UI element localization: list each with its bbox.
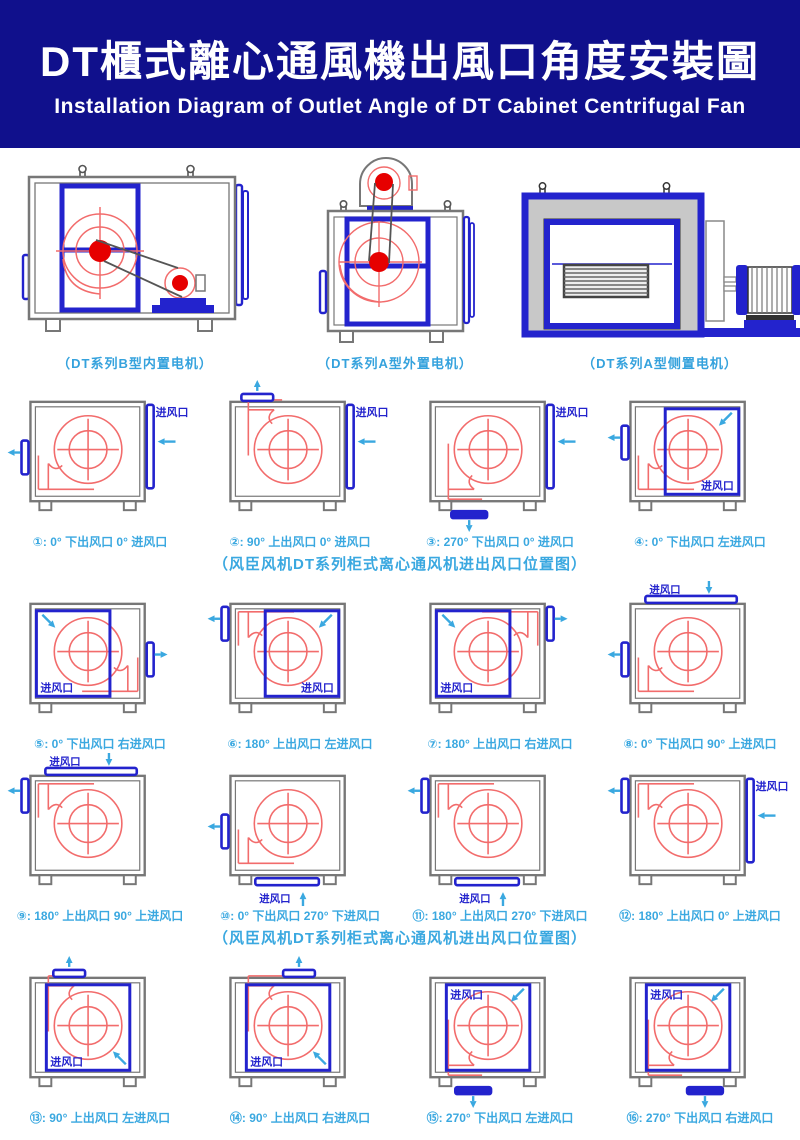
orientation-row-4: 进风口 ⑬: 90° 上出风口 左进风口 进风口 ⑭: 90° 上出风口 右进风… — [0, 954, 800, 1126]
fan-orientation-cell: 进风口 ⑥: 180° 上出风口 左进风口 — [200, 580, 400, 752]
cabinet-leg — [639, 501, 651, 510]
cabinet-leg — [124, 875, 136, 884]
fan-unit-external-motor-diagram — [310, 149, 480, 349]
cabinet-leg — [639, 1077, 651, 1086]
page-subtitle: Installation Diagram of Outlet Angle of … — [0, 95, 800, 119]
cell-label: ⑫: 180° 上出风口 0° 上进风口 — [619, 907, 781, 924]
cabinet-leg — [639, 875, 651, 884]
fan-orientation-diagram: 进风口 — [5, 954, 195, 1111]
fan-orientation-cell: 进风口 ⑤: 0° 下出风口 右进风口 — [0, 580, 200, 752]
section-caption-2: （风臣风机DT系列柜式离心通风机进出风口位置图） — [0, 924, 800, 954]
inlet-label: 进风口 — [450, 988, 483, 1002]
fan-orientation-cell: 进风口 ⑯: 270° 下出风口 右进风口 — [600, 954, 800, 1126]
inlet-label: 进风口 — [756, 779, 789, 793]
section-caption-1: （风臣风机DT系列柜式离心通风机进出风口位置图） — [0, 550, 800, 580]
inlet-label: 进风口 — [156, 405, 189, 419]
duct-flange-bar — [547, 405, 554, 488]
cabinet-leg — [439, 1077, 451, 1086]
fan-orientation-cell: 进风口 ⑩: 0° 下出风口 270° 下进风口 — [200, 752, 400, 924]
orientation-row-2: 进风口 ⑤: 0° 下出风口 右进风口 进风口 ⑥: 180° 上出风口 左进风… — [0, 580, 800, 752]
flow-arrow-icon — [254, 380, 261, 391]
inlet-label: 进风口 — [301, 680, 334, 694]
cabinet-leg — [724, 703, 736, 712]
duct-flange-bar — [22, 441, 29, 475]
fan-orientation-cell: 进风口 ①: 0° 下出风口 0° 进风口 — [0, 378, 200, 550]
flow-arrow-icon — [758, 812, 776, 819]
cabinet-leg — [724, 875, 736, 884]
duct-flange-bar — [222, 607, 229, 641]
flow-arrow-icon — [558, 438, 576, 445]
duct-flange-bar — [222, 815, 229, 849]
fan-orientation-cell: 进风口 ⑮: 270° 下出风口 左进风口 — [400, 954, 600, 1126]
side-motor — [736, 265, 800, 328]
flow-arrow-icon — [608, 787, 621, 794]
flow-arrow-icon — [358, 438, 376, 445]
motor-pulley — [375, 173, 393, 191]
duct-flange-bar — [347, 405, 354, 488]
cabinet-leg — [524, 501, 536, 510]
motor-pulley — [172, 275, 188, 291]
fan-orientation-diagram: 进风口 — [405, 378, 595, 535]
flow-arrow-icon — [466, 520, 473, 532]
cabinet-leg — [524, 875, 536, 884]
fan-orientation-cell: 进风口 ⑫: 180° 上出风口 0° 上进风口 — [600, 752, 800, 924]
cabinet-leg — [524, 703, 536, 712]
cabinet-leg — [724, 1077, 736, 1086]
page: DT櫃式離心通風機出風口角度安裝圖 Installation Diagram o… — [0, 0, 800, 1140]
inlet-label: 进风口 — [701, 478, 734, 492]
duct-flange-bar — [747, 779, 754, 862]
duct-flange-bar — [622, 643, 629, 677]
fan-orientation-cell: 进风口 ③: 270° 下出风口 0° 进风口 — [400, 378, 600, 550]
cabinet-leg — [439, 501, 451, 510]
fan-orientation-diagram: 进风口 — [5, 752, 195, 909]
cabinet-leg — [724, 501, 736, 510]
orientation-row-3: 进风口 ⑨: 180° 上出风口 90° 上进风口 进风口 ⑩: 0° 下出风口… — [0, 752, 800, 924]
cell-label: ⑥: 180° 上出风口 左进风口 — [228, 735, 373, 752]
flow-arrow-icon — [208, 615, 221, 622]
fan-unit-side-motor-diagram — [518, 179, 800, 349]
flow-arrow-icon — [300, 892, 307, 906]
inlet-label: 进风口 — [556, 405, 589, 419]
duct-flange-bar — [622, 426, 629, 460]
cabinet-leg — [124, 703, 136, 712]
fan-orientation-cell: 进风口 ⑧: 0° 下出风口 90° 上进风口 — [600, 580, 800, 752]
cabinet-leg — [124, 501, 136, 510]
fan-orientation-diagram: 进风口 — [405, 580, 595, 737]
cabinet-leg — [324, 501, 336, 510]
fan-orientation-cell: 进风口 ⑨: 180° 上出风口 90° 上进风口 — [0, 752, 200, 924]
duct-flange-bar — [241, 394, 273, 401]
cell-label: ⑦: 180° 上出风口 右进风口 — [428, 735, 573, 752]
flow-arrow-icon — [408, 787, 421, 794]
duct-flange-bar — [255, 878, 319, 885]
cabinet-leg — [39, 501, 51, 510]
flow-arrow-icon — [8, 787, 21, 794]
unit-caption: （DT系列A型外置电机） — [317, 353, 473, 372]
fan-orientation-diagram: 进风口 — [5, 580, 195, 737]
cabinet-leg — [39, 875, 51, 884]
inlet-label: 进风口 — [649, 583, 680, 596]
inlet-label: 进风口 — [250, 1054, 283, 1068]
fan-orientation-cell: 进风口 ②: 90° 上出风口 0° 进风口 — [200, 378, 400, 550]
duct-flange-bar — [687, 1087, 723, 1094]
fan-orientation-diagram: 进风口 — [205, 580, 395, 737]
cabinet-leg — [239, 703, 251, 712]
cell-label: ④: 0° 下出风口 左进风口 — [634, 533, 766, 550]
cabinet-leg — [524, 1077, 536, 1086]
unit-b-type-internal-motor: （DT系列B型内置电机） — [0, 159, 270, 378]
fan-orientation-diagram: 进风口 — [205, 378, 395, 535]
fan-orientation-diagram: 进风口 — [605, 378, 795, 535]
eye-bolt-icon — [539, 183, 669, 194]
fan-orientation-diagram: 进风口 — [405, 954, 595, 1111]
page-title: DT櫃式離心通風機出風口角度安裝圖 — [0, 39, 800, 85]
fan-orientation-cell: 进风口 ⑪: 180° 上出风口 270° 下进风口 — [400, 752, 600, 924]
duct-flange-bar — [455, 878, 519, 885]
cell-label: ⑤: 0° 下出风口 右进风口 — [34, 735, 166, 752]
inlet-label: 进风口 — [40, 680, 73, 694]
cell-label: ②: 90° 上出风口 0° 进风口 — [229, 533, 370, 550]
fan-orientation-cell: 进风口 ⑦: 180° 上出风口 右进风口 — [400, 580, 600, 752]
cell-label: ⑪: 180° 上出风口 270° 下进风口 — [413, 907, 588, 924]
unit-a-type-external-motor: （DT系列A型外置电机） — [270, 149, 520, 378]
cabinet-leg — [324, 703, 336, 712]
heat-exchanger-block — [564, 265, 648, 297]
duct-flange-bar — [147, 643, 154, 677]
fan-orientation-cell: 进风口 ④: 0° 下出风口 左进风口 — [600, 378, 800, 550]
fan-orientation-cell: 进风口 ⑬: 90° 上出风口 左进风口 — [0, 954, 200, 1126]
cabinet-leg — [639, 703, 651, 712]
cell-label: ⑬: 90° 上出风口 左进风口 — [30, 1109, 170, 1126]
inlet-label: 进风口 — [50, 1054, 83, 1068]
cell-label: ⑧: 0° 下出风口 90° 上进风口 — [623, 735, 776, 752]
unit-caption: （DT系列A型侧置电机） — [582, 353, 738, 372]
fan-orientation-cell: 进风口 ⑭: 90° 上出风口 右进风口 — [200, 954, 400, 1126]
cabinet-leg — [124, 1077, 136, 1086]
fan-orientation-diagram: 进风口 — [5, 378, 195, 535]
cabinet-leg — [39, 703, 51, 712]
cabinet-leg — [239, 501, 251, 510]
inlet-label: 进风口 — [440, 680, 473, 694]
duct-flange-bar — [45, 768, 136, 775]
cell-label: ⑭: 90° 上出风口 右进风口 — [230, 1109, 370, 1126]
duct-flange-bar — [147, 405, 154, 488]
flow-arrow-icon — [608, 434, 621, 441]
flow-arrow-icon — [106, 753, 113, 766]
fan-orientation-diagram: 进风口 — [405, 752, 595, 909]
cell-label: ⑩: 0° 下出风口 270° 下进风口 — [220, 907, 380, 924]
drive-pulley — [369, 252, 389, 272]
cabinet-leg — [239, 875, 251, 884]
unit-a-type-side-motor: （DT系列A型侧置电机） — [520, 179, 800, 378]
unit-caption: （DT系列B型内置电机） — [57, 353, 213, 372]
cabinet-leg — [439, 703, 451, 712]
inlet-label: 进风口 — [49, 755, 80, 768]
fan-unit-internal-motor-diagram — [20, 159, 250, 349]
header-banner: DT櫃式離心通風機出風口角度安裝圖 Installation Diagram o… — [0, 0, 800, 148]
fan-orientation-diagram: 进风口 — [605, 954, 795, 1111]
fan-orientation-diagram: 进风口 — [605, 752, 795, 909]
fan-orientation-diagram: 进风口 — [605, 580, 795, 737]
cabinet-leg — [439, 875, 451, 884]
cabinet-leg — [239, 1077, 251, 1086]
cell-label: ①: 0° 下出风口 0° 进风口 — [33, 533, 167, 550]
fan-orientation-diagram: 进风口 — [205, 954, 395, 1111]
top-unit-diagrams: （DT系列B型内置电机） — [0, 148, 800, 378]
flow-arrow-icon — [500, 892, 507, 906]
duct-flange-bar — [547, 607, 554, 641]
flow-arrow-icon — [296, 956, 303, 967]
duct-flange-bar — [622, 779, 629, 813]
inlet-label: 进风口 — [259, 892, 290, 905]
flow-arrow-icon — [66, 956, 73, 967]
cell-label: ⑮: 270° 下出风口 左进风口 — [427, 1109, 574, 1126]
flow-arrow-icon — [155, 651, 168, 658]
duct-flange-bar — [455, 1087, 491, 1094]
flow-arrow-icon — [208, 823, 221, 830]
duct-flange-bar — [422, 779, 429, 813]
fan-orientation-diagram: 进风口 — [205, 752, 395, 909]
flow-arrow-icon — [702, 1096, 709, 1108]
duct-flange-bar — [53, 970, 85, 977]
cell-label: ③: 270° 下出风口 0° 进风口 — [426, 533, 574, 550]
duct-flange-bar — [451, 511, 487, 518]
orientation-row-1: 进风口 ①: 0° 下出风口 0° 进风口 进风口 ②: 90° 上出风口 0°… — [0, 378, 800, 550]
duct-flange-bar — [22, 779, 29, 813]
duct-flange-bar — [645, 596, 736, 603]
inlet-label: 进风口 — [650, 988, 683, 1002]
cabinet-leg — [39, 1077, 51, 1086]
inlet-label: 进风口 — [356, 405, 389, 419]
cabinet-leg — [324, 875, 336, 884]
flow-arrow-icon — [608, 651, 621, 658]
flow-arrow-icon — [706, 581, 713, 594]
duct-flange-bar — [283, 970, 315, 977]
cell-label: ⑨: 180° 上出风口 90° 上进风口 — [17, 907, 183, 924]
flow-arrow-icon — [8, 449, 21, 456]
flow-arrow-icon — [555, 615, 568, 622]
flow-arrow-icon — [158, 438, 176, 445]
cabinet-leg — [324, 1077, 336, 1086]
cell-label: ⑯: 270° 下出风口 右进风口 — [627, 1109, 774, 1126]
flow-arrow-icon — [470, 1096, 477, 1108]
inlet-label: 进风口 — [459, 892, 490, 905]
